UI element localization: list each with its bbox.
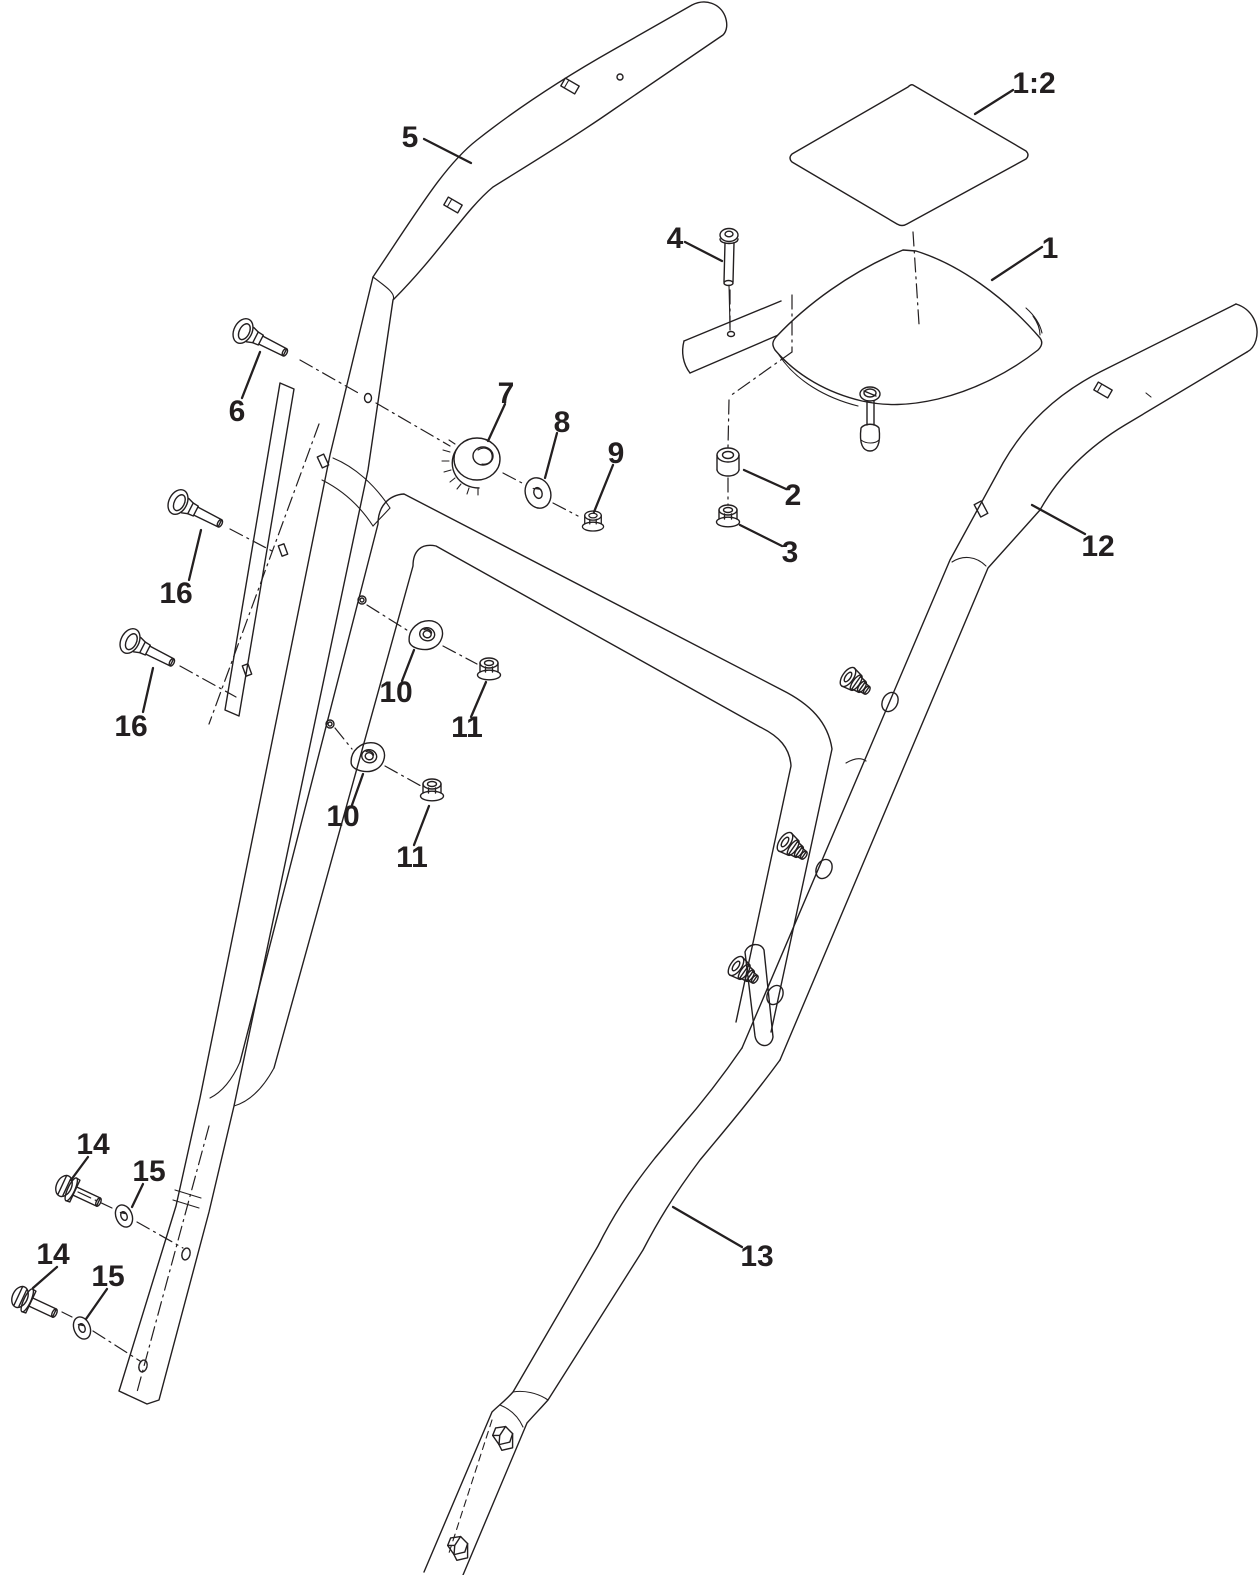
- callout-5: 5: [402, 121, 419, 154]
- flange-nut-11-lower: [421, 779, 444, 801]
- callout-3: 3: [782, 536, 799, 569]
- callout-10-lower: 10: [326, 800, 359, 833]
- decal: [790, 85, 1028, 226]
- callout-15-upper: 15: [132, 1155, 165, 1188]
- callout-1-2: 1:2: [1012, 67, 1055, 100]
- cable-clamp-10-lower: [349, 739, 387, 775]
- washer-8: [521, 474, 555, 512]
- callout-10-upper: 10: [379, 676, 412, 709]
- carriage-bolt-16-upper: [164, 486, 228, 536]
- nut-9: [582, 511, 603, 531]
- handle-cross-brace: [683, 301, 783, 373]
- callout-1: 1: [1042, 232, 1059, 265]
- nut-3: [717, 505, 740, 527]
- upper-handle-left: [119, 2, 727, 1404]
- cable-clamp-10-upper: [407, 617, 445, 653]
- callout-12: 12: [1081, 530, 1114, 563]
- bolt-4: [720, 229, 738, 328]
- handle-stud: [837, 665, 875, 701]
- callout-8: 8: [554, 406, 571, 439]
- carriage-bolt-16-lower: [116, 625, 180, 675]
- hex-bolt-14-lower: [8, 1283, 62, 1326]
- carriage-bolt-6: [229, 315, 293, 365]
- callout-2: 2: [785, 479, 802, 512]
- callout-14-upper: 14: [76, 1128, 110, 1161]
- callout-15-lower: 15: [91, 1260, 124, 1293]
- lower-handle-right: [424, 1048, 780, 1575]
- diagram-line-art: [8, 2, 1257, 1575]
- callout-11-upper: 11: [451, 711, 483, 744]
- knob-7: [442, 438, 500, 495]
- callout-9: 9: [608, 437, 625, 470]
- callout-14-lower: 14: [36, 1238, 70, 1271]
- upper-handle-right: [742, 304, 1257, 1060]
- flange-nut-11-upper: [478, 658, 501, 680]
- parts-diagram: 1:2 1 2 3 4 5 6 7 8 9 10 11 10 11 12 13 …: [0, 0, 1258, 1575]
- callout-13: 13: [740, 1240, 773, 1273]
- bracket-bolt: [492, 1426, 515, 1452]
- cover: [773, 250, 1042, 451]
- spacer-2: [717, 448, 739, 476]
- handle-stud: [774, 830, 812, 866]
- bracket-bolt: [447, 1536, 470, 1562]
- callout-16-lower: 16: [114, 710, 147, 743]
- callout-7: 7: [498, 377, 515, 410]
- callout-4: 4: [667, 222, 684, 255]
- callout-16-upper: 16: [159, 577, 192, 610]
- handle-rail-left: [225, 383, 294, 716]
- callout-11-lower: 11: [396, 841, 428, 874]
- washer-15-lower: [70, 1314, 93, 1341]
- callout-6: 6: [229, 395, 246, 428]
